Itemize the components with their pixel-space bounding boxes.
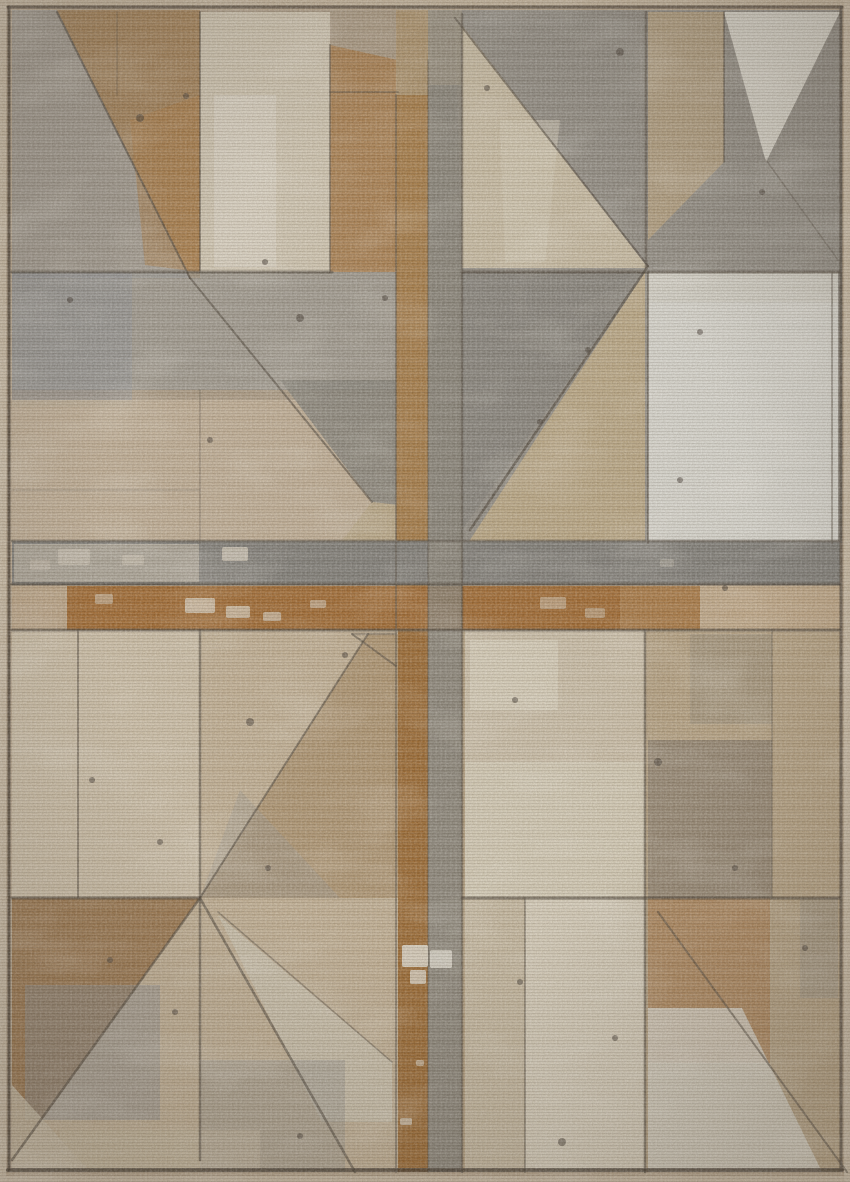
- rug-photo: [0, 0, 850, 1182]
- rug-art: [0, 0, 850, 1182]
- fabric-grain-light: [0, 0, 850, 1182]
